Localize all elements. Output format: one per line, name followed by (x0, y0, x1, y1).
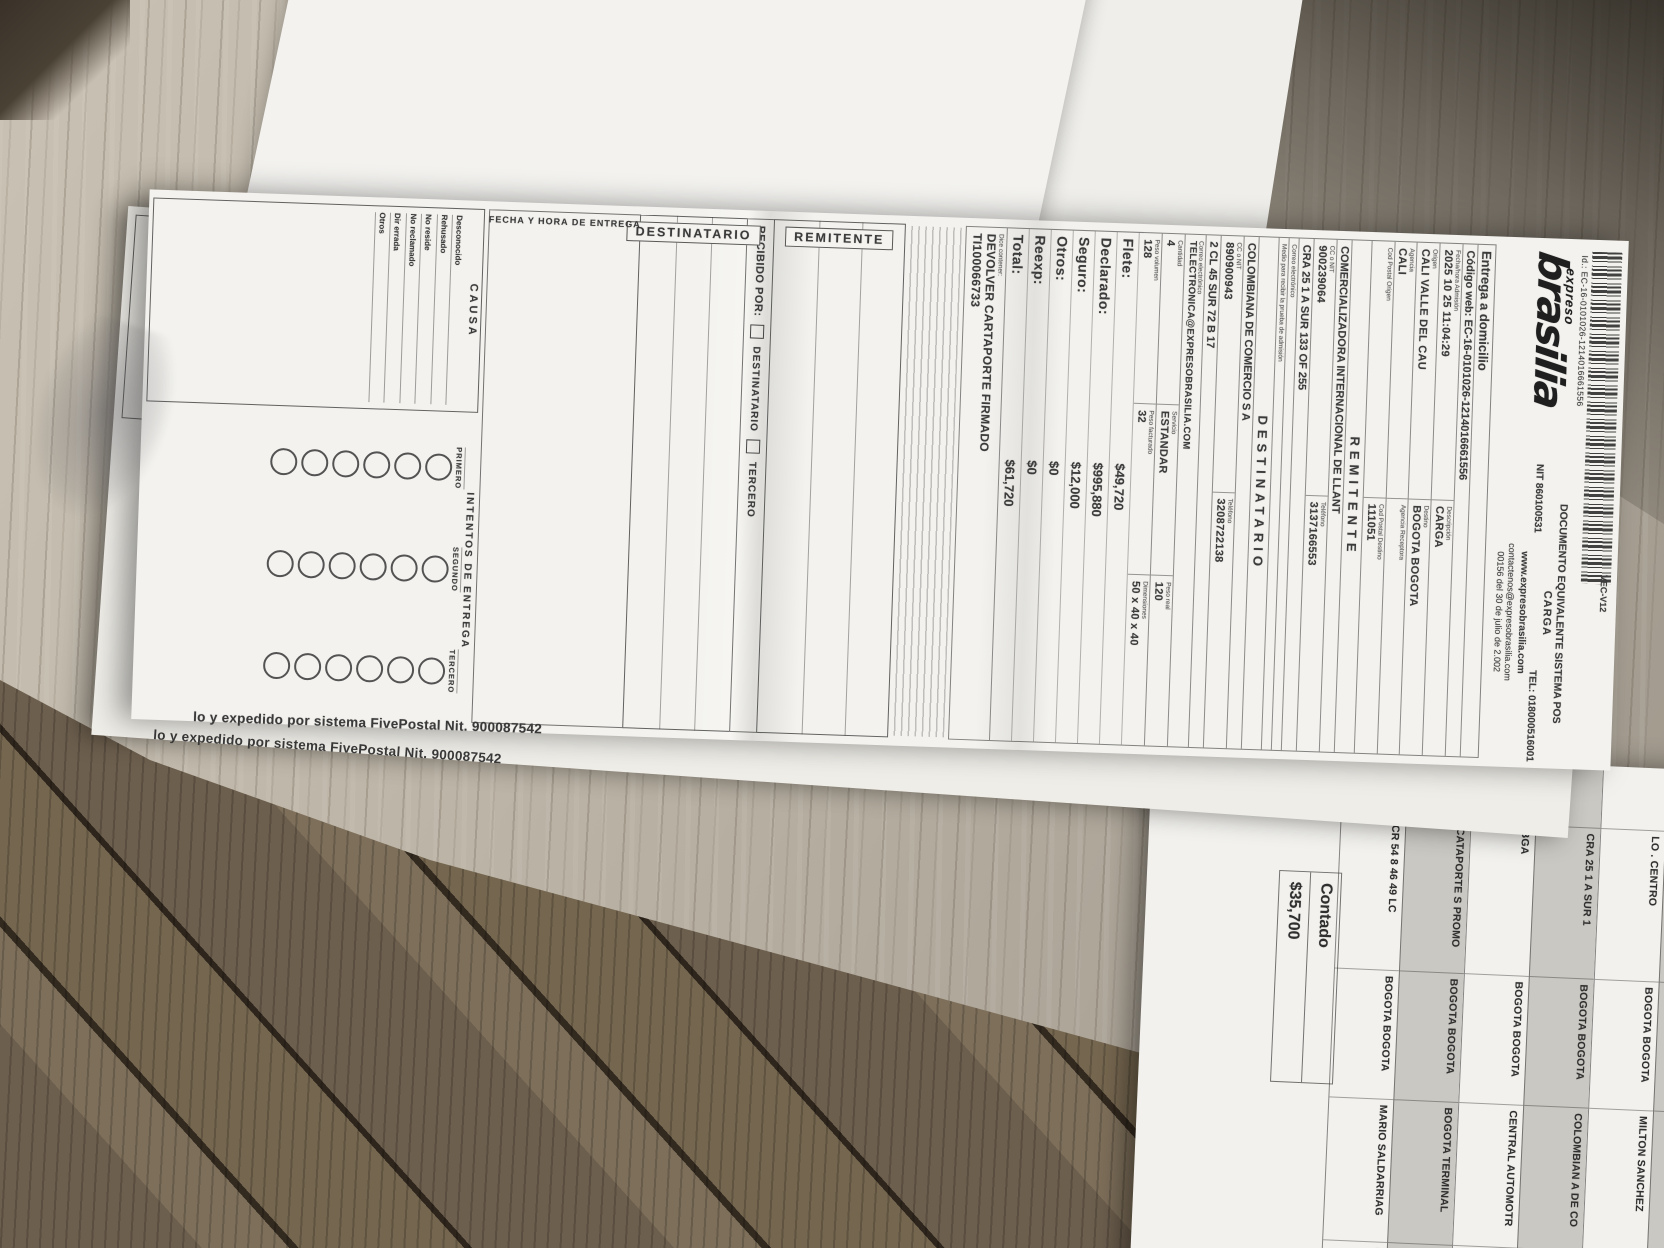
brand-logo: expreso brasilia (1532, 250, 1576, 411)
attempt-label: TERCERO (446, 649, 459, 693)
attempt-column-primero: PRIMERO (144, 436, 466, 489)
manifest-cell-name: CENTRAL AUTOMOTR (1453, 1102, 1523, 1248)
manifest-cell-address: CR 54 8 46 49 LC (1335, 817, 1406, 971)
manifest-cell-name: COLOMBIAN A DE CO (1518, 1105, 1588, 1248)
photo-of-shipping-documents: PRIMERO SEGUNDO TERCERO lo y expedido po… (0, 0, 1664, 1248)
fecha-entrega-box: FECHA Y HORA DE ENTREGA (471, 209, 640, 728)
manifest-cell-address: LO . CENTRO (1595, 828, 1664, 982)
dark-desk-corner (0, 0, 130, 120)
manifest-cell-cities: BOGOTA BOGOTA (1394, 970, 1464, 1102)
destinatario-signature-box: DESTINATARIO (622, 214, 747, 731)
attempt-label: SEGUNDO (450, 547, 463, 592)
destinatario-checkbox-label: DESTINATARIO (748, 346, 762, 432)
intentos-box: INTENTOS DE ENTREGA PRIMERO SEGUNDO TERC… (135, 407, 477, 722)
brand-name: brasilia (1532, 250, 1567, 410)
tercero-checkbox-label: TERCERO (745, 462, 758, 518)
waybill-receipt: VEC-V12 Id.: EC-16-0101026-1214016661556… (131, 189, 1629, 770)
manifest-cell-address: CATAPORTE S PROMO (1400, 819, 1471, 973)
waybill-grid: Entrega a domicilio Código web: EC-16-01… (948, 226, 1497, 758)
attempt-column-segundo: SEGUNDO (140, 536, 462, 592)
destinatario-checkbox (750, 324, 764, 338)
tercero-checkbox (746, 440, 760, 454)
company-nit: NIT 860100531 (1530, 464, 1545, 533)
manifest-cell-name: BOGOTA TERMINAL (1388, 1099, 1458, 1245)
attempt-column-tercero: TERCERO (136, 639, 458, 694)
manifest-cell-name: MILTON SANCHEZ (1583, 1108, 1653, 1248)
attempt-label: PRIMERO (453, 447, 465, 489)
manifest-cell-name: MARIO SALDARRIAG (1323, 1096, 1393, 1242)
causa-box: CAUSA Desconocido Rehusado No reside No … (146, 197, 485, 412)
waybill-header: VEC-V12 Id.: EC-16-0101026-1214016661556… (1479, 244, 1625, 762)
codigo-web-label: Código web: (1462, 250, 1476, 316)
manifest-cell-cities: BOGOTA BOGOTA (1524, 976, 1594, 1108)
destinatario-signature-title: DESTINATARIO (626, 221, 761, 246)
delivery-attempts-section: CAUSA Desconocido Rehusado No reside No … (135, 197, 488, 722)
manifest-cell-cities: BOGOTA BOGOTA (1329, 967, 1399, 1099)
remitente-signature-title: REMITENTE (785, 227, 894, 251)
attempt-circle (424, 454, 452, 482)
form-version: VEC-V12 (1598, 575, 1609, 613)
manifest-cell-cities: BOGOTA BOGOTA (1589, 979, 1659, 1111)
manifest-cell-address: CRA 25 1 A SUR 1 (1530, 825, 1601, 979)
manifest-cell-cities: BOGOTA BOGOTA (1459, 973, 1529, 1105)
fecha-entrega-label: FECHA Y HORA DE ENTREGA (488, 214, 640, 229)
manifest-cell-address: BGA (1465, 822, 1536, 976)
remitente-signature-box: REMITENTE (756, 219, 906, 737)
